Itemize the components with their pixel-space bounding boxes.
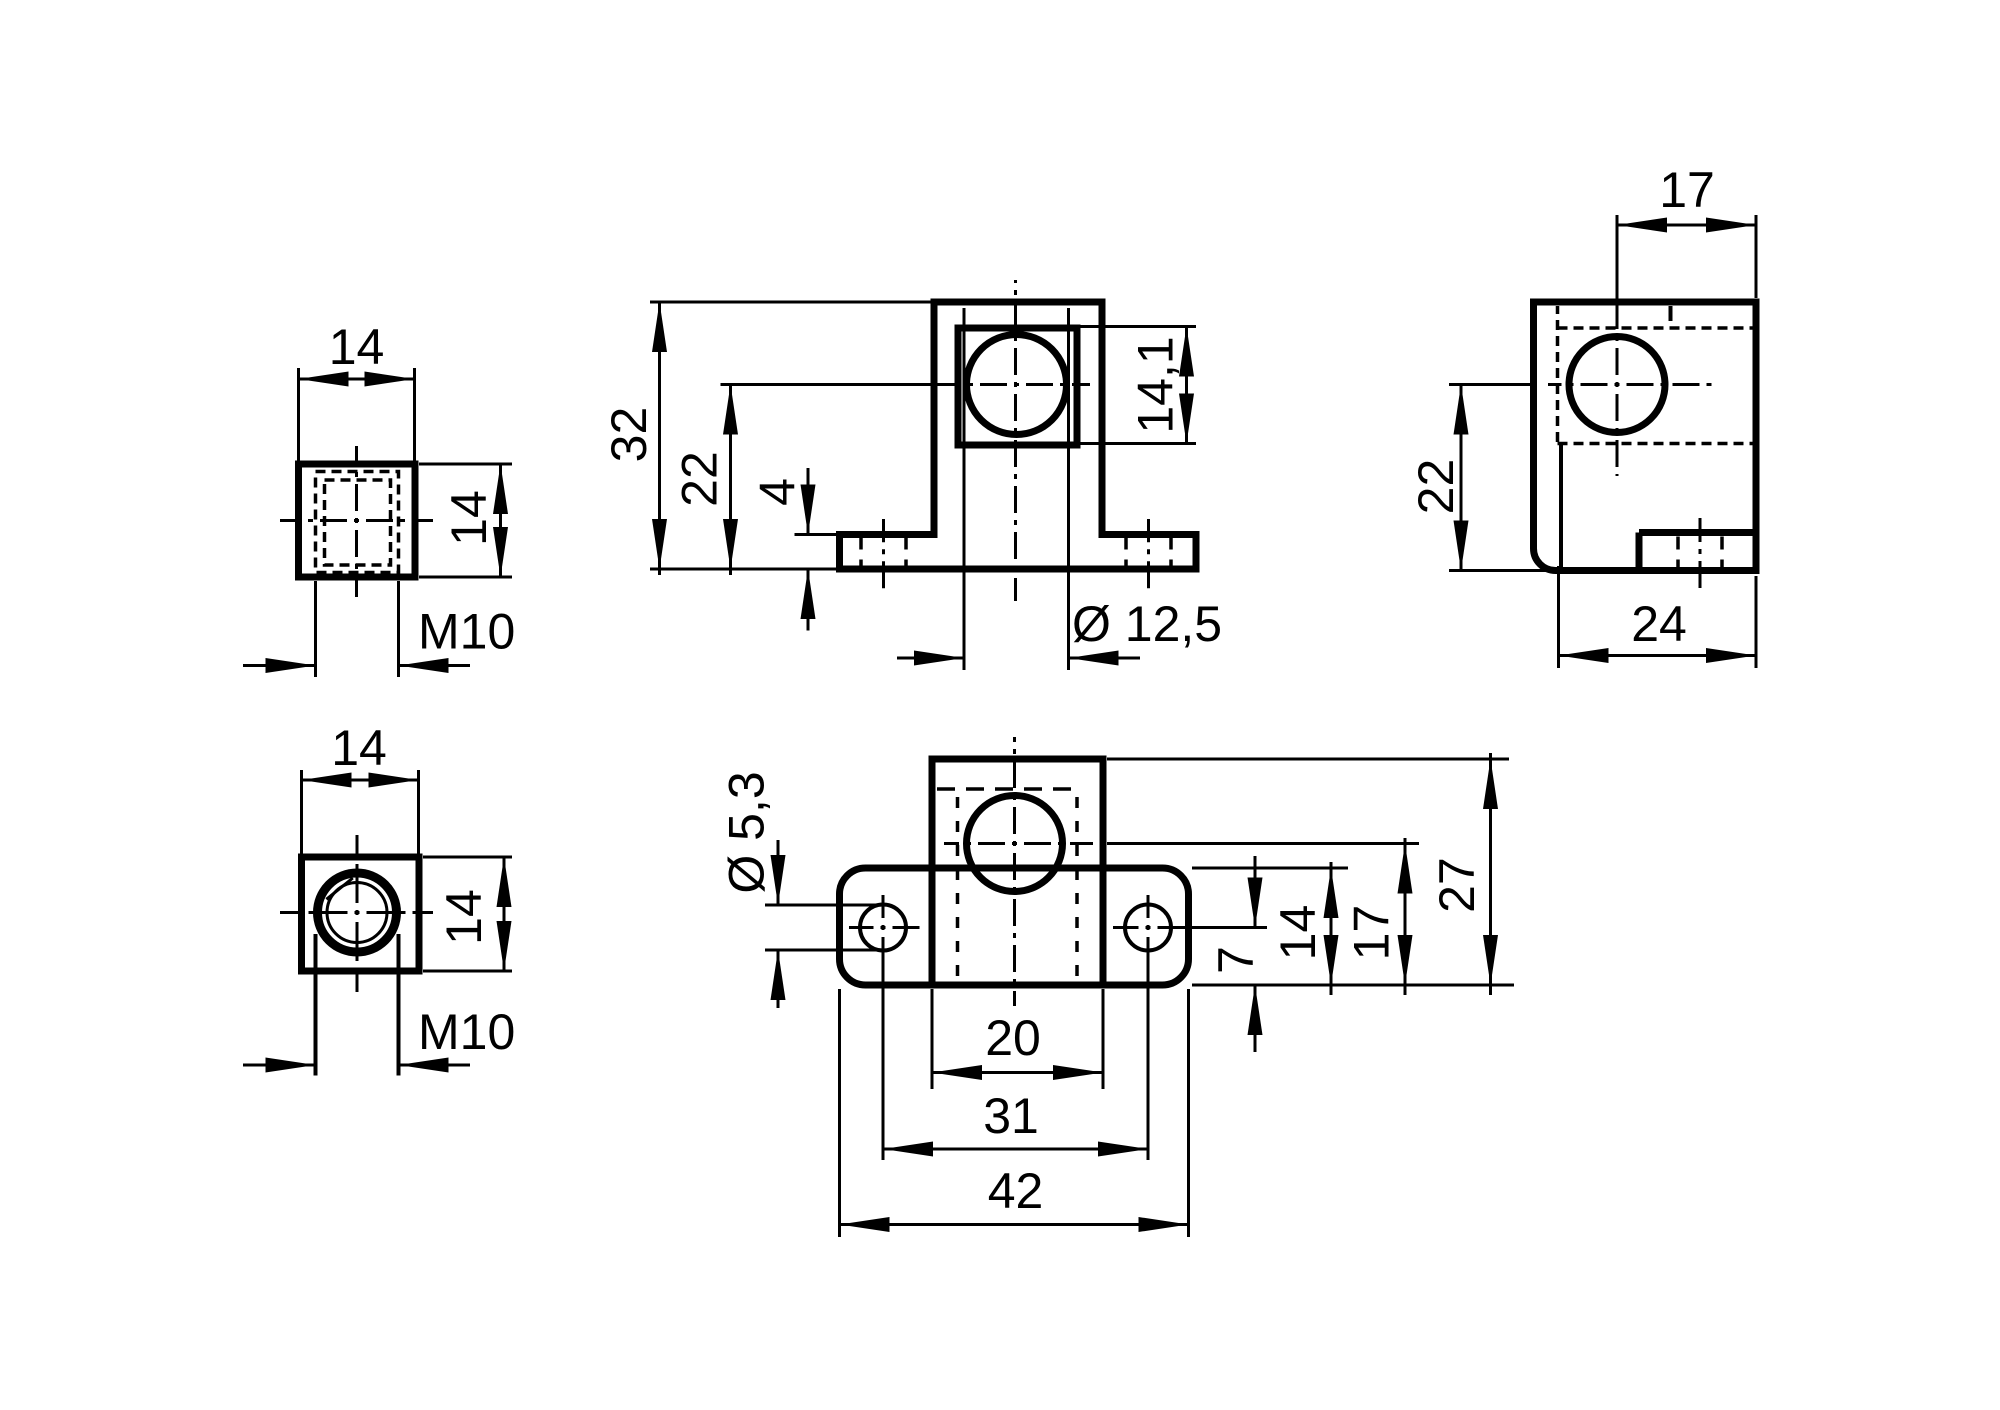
svg-text:14: 14: [436, 889, 492, 945]
svg-text:22: 22: [1408, 459, 1464, 515]
svg-text:7: 7: [1208, 946, 1264, 974]
svg-text:20: 20: [985, 1010, 1041, 1066]
svg-text:42: 42: [988, 1163, 1044, 1219]
svg-text:M10: M10: [418, 604, 515, 660]
svg-text:14: 14: [331, 720, 387, 776]
svg-text:4: 4: [750, 478, 806, 506]
svg-text:24: 24: [1631, 596, 1687, 652]
svg-text:Ø 12,5: Ø 12,5: [1072, 596, 1222, 652]
svg-text:17: 17: [1659, 162, 1715, 218]
svg-text:14: 14: [441, 490, 497, 546]
svg-text:14: 14: [329, 319, 385, 375]
svg-text:14: 14: [1270, 905, 1326, 961]
svg-text:Ø 5,3: Ø 5,3: [719, 771, 775, 893]
svg-text:32: 32: [601, 407, 657, 463]
svg-text:27: 27: [1429, 857, 1485, 913]
svg-text:14,1: 14,1: [1128, 336, 1184, 433]
svg-text:31: 31: [983, 1088, 1039, 1144]
svg-text:22: 22: [672, 451, 728, 507]
svg-text:17: 17: [1344, 905, 1400, 961]
svg-text:M10: M10: [418, 1004, 515, 1060]
